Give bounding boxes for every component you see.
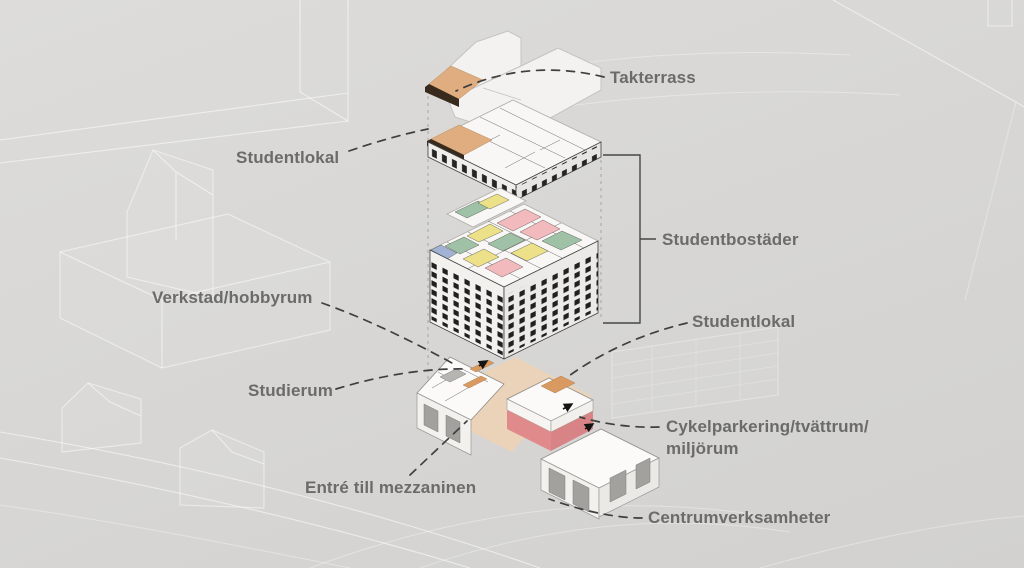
label-verkstad-hobbyrum: Verkstad/hobbyrum xyxy=(152,287,312,309)
label-entre-mezzanin: Entré till mezzaninen xyxy=(305,477,476,499)
label-cykelparkering-line2: miljörum xyxy=(666,438,869,460)
student-housing-block xyxy=(430,188,598,359)
label-studentlokal-top: Studentlokal xyxy=(236,147,339,169)
label-studentbostader: Studentbostäder xyxy=(662,229,799,251)
context-facade-grid xyxy=(612,327,778,418)
label-studentlokal-bottom: Studentlokal xyxy=(692,311,795,333)
label-takterrass: Takterrass xyxy=(610,67,696,89)
architecture-diagram: Takterrass Studentlokal Studentbostäder … xyxy=(0,0,1024,568)
label-centrumverksamheter: Centrumverksamheter xyxy=(648,507,830,529)
leader-studentlokal-top xyxy=(349,129,428,151)
label-cykelparkering-line1: Cykelparkering/tvättrum/ xyxy=(666,416,869,438)
attic-floor-plate xyxy=(427,100,601,200)
label-studierum: Studierum xyxy=(248,380,333,402)
studentbostader-bracket xyxy=(603,155,656,323)
diagram-scene xyxy=(0,0,1024,568)
label-cykelparkering: Cykelparkering/tvättrum/ miljörum xyxy=(666,416,869,460)
